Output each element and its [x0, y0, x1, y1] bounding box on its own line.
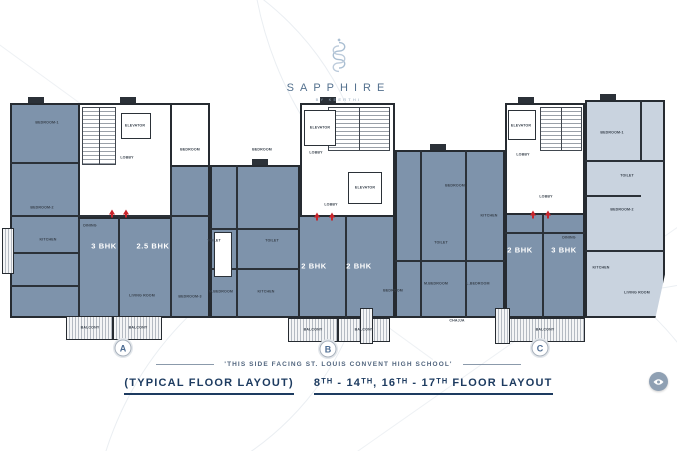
floor-plan-page: SAPPHIRE BY KEERTHI [0, 0, 677, 451]
wall [542, 215, 544, 318]
duct-tab [252, 159, 268, 165]
logo-subtitle: BY KEERTHI [0, 97, 677, 102]
room-label: BEDROOM [445, 184, 465, 188]
room-label: BEDROOM-2 [30, 206, 53, 210]
room-label: LOBBY [539, 195, 552, 199]
caption-separator [156, 364, 214, 365]
view-toggle-button[interactable] [649, 372, 668, 391]
sapphire-monogram-icon [322, 38, 356, 76]
room-label: BALCONY [129, 326, 148, 330]
bhk-type-label: 2 BHK [301, 262, 327, 271]
room-label: BEDROOM-1 [35, 121, 58, 125]
room-label: TOILET [265, 239, 279, 243]
wall [585, 250, 665, 252]
room-label: ELEVATOR [511, 124, 531, 128]
floor-range-label: 8ᵀᴴ - 14ᵀᴴ, 16ᵀᴴ - 17ᵀᴴ FLOOR LAYOUT [314, 377, 553, 395]
balcony-strip [495, 308, 510, 344]
wall [10, 285, 78, 287]
room-label: LOBBY [324, 203, 337, 207]
room-label: TOILET [620, 174, 634, 178]
room-label: BEDROOM-3 [178, 295, 201, 299]
wall [10, 252, 78, 254]
entry-arrow-icon [109, 210, 115, 215]
room-label: DINING [83, 224, 96, 228]
staircase-c [540, 107, 582, 151]
bhk-type-label: 3 BHK [91, 242, 117, 251]
room-label: CHAJJA [449, 319, 464, 323]
room-label: BEDROOM [383, 289, 403, 293]
room-label: ELEVATOR [355, 186, 375, 190]
wall [10, 162, 78, 164]
wall [640, 100, 642, 160]
wall [236, 165, 238, 318]
wall [395, 260, 505, 262]
floor-layout-caption: (TYPICAL FLOOR LAYOUT) 8ᵀᴴ - 14ᵀᴴ, 16ᵀᴴ … [0, 377, 677, 395]
caption-separator [463, 364, 521, 365]
layout-type-label: (TYPICAL FLOOR LAYOUT) [124, 377, 293, 395]
room-label: BALCONY [81, 326, 100, 330]
room-label: BEDROOM-2 [610, 208, 633, 212]
entry-arrow-icon [329, 213, 335, 218]
wall [170, 167, 172, 318]
bhk-type-label: 2 BHK [507, 246, 533, 255]
facing-caption: 'THIS SIDE FACING ST. LOUIS CONVENT HIGH… [224, 361, 452, 368]
room-label: LIVING ROOM [129, 294, 155, 298]
entry-arrow-icon [545, 211, 551, 216]
room-label: BALCONY [355, 328, 374, 332]
room-label: TOILET [207, 239, 221, 243]
entry-arrow-icon [123, 210, 129, 215]
wall [505, 232, 585, 234]
room-label: BEDROOM [252, 148, 272, 152]
room-label: KITCHEN [480, 214, 497, 218]
room-label: M.BEDROOM [424, 282, 448, 286]
room-label: TOILET [434, 241, 448, 245]
room-label: BEDROOM [180, 148, 200, 152]
room-label: BALCONY [536, 328, 555, 332]
balcony-strip [2, 228, 14, 274]
room-label: M.BEDROOM [209, 290, 233, 294]
room-label: ELEVATOR [310, 126, 330, 130]
wall [210, 228, 300, 230]
wall [78, 219, 80, 318]
section-marker: A [115, 340, 132, 357]
bhk-type-label: 2 BHK [346, 262, 372, 271]
staircase-a [82, 107, 116, 165]
room-label: KITCHEN [257, 290, 274, 294]
facing-caption-row: 'THIS SIDE FACING ST. LOUIS CONVENT HIGH… [0, 361, 677, 368]
room-label: LOBBY [309, 151, 322, 155]
wall [10, 215, 210, 217]
core-a-upper-gap [170, 103, 210, 167]
staircase-b [328, 107, 390, 151]
balcony-strip [360, 308, 373, 344]
room-label: DINING [562, 236, 575, 240]
wall [585, 195, 641, 197]
room-label: L.BEDROOM [466, 282, 489, 286]
bhk-type-label: 3 BHK [551, 246, 577, 255]
eye-icon [653, 378, 664, 386]
section-marker: C [532, 340, 549, 357]
entry-arrow-icon [314, 213, 320, 218]
wall [420, 150, 422, 318]
room-label: KITCHEN [592, 266, 609, 270]
bhk-type-label: 2.5 BHK [137, 242, 170, 251]
unit-block-c [505, 213, 585, 318]
room-label: ELEVATOR [125, 124, 145, 128]
logo-wordmark: SAPPHIRE [0, 82, 677, 94]
room-label: BALCONY [304, 328, 323, 332]
unit-block-bc [395, 150, 505, 318]
wall [118, 217, 120, 318]
room-label: KITCHEN [39, 238, 56, 242]
room-label: LIVING ROOM [624, 291, 650, 295]
project-logo: SAPPHIRE BY KEERTHI [0, 38, 677, 102]
wall [585, 160, 665, 162]
duct-tab [430, 144, 446, 150]
wall [465, 150, 467, 318]
room-label: BEDROOM-1 [600, 131, 623, 135]
section-marker: B [320, 341, 337, 358]
entry-arrow-icon [530, 211, 536, 216]
room-label: LOBBY [516, 153, 529, 157]
room-label: LOBBY [120, 156, 133, 160]
